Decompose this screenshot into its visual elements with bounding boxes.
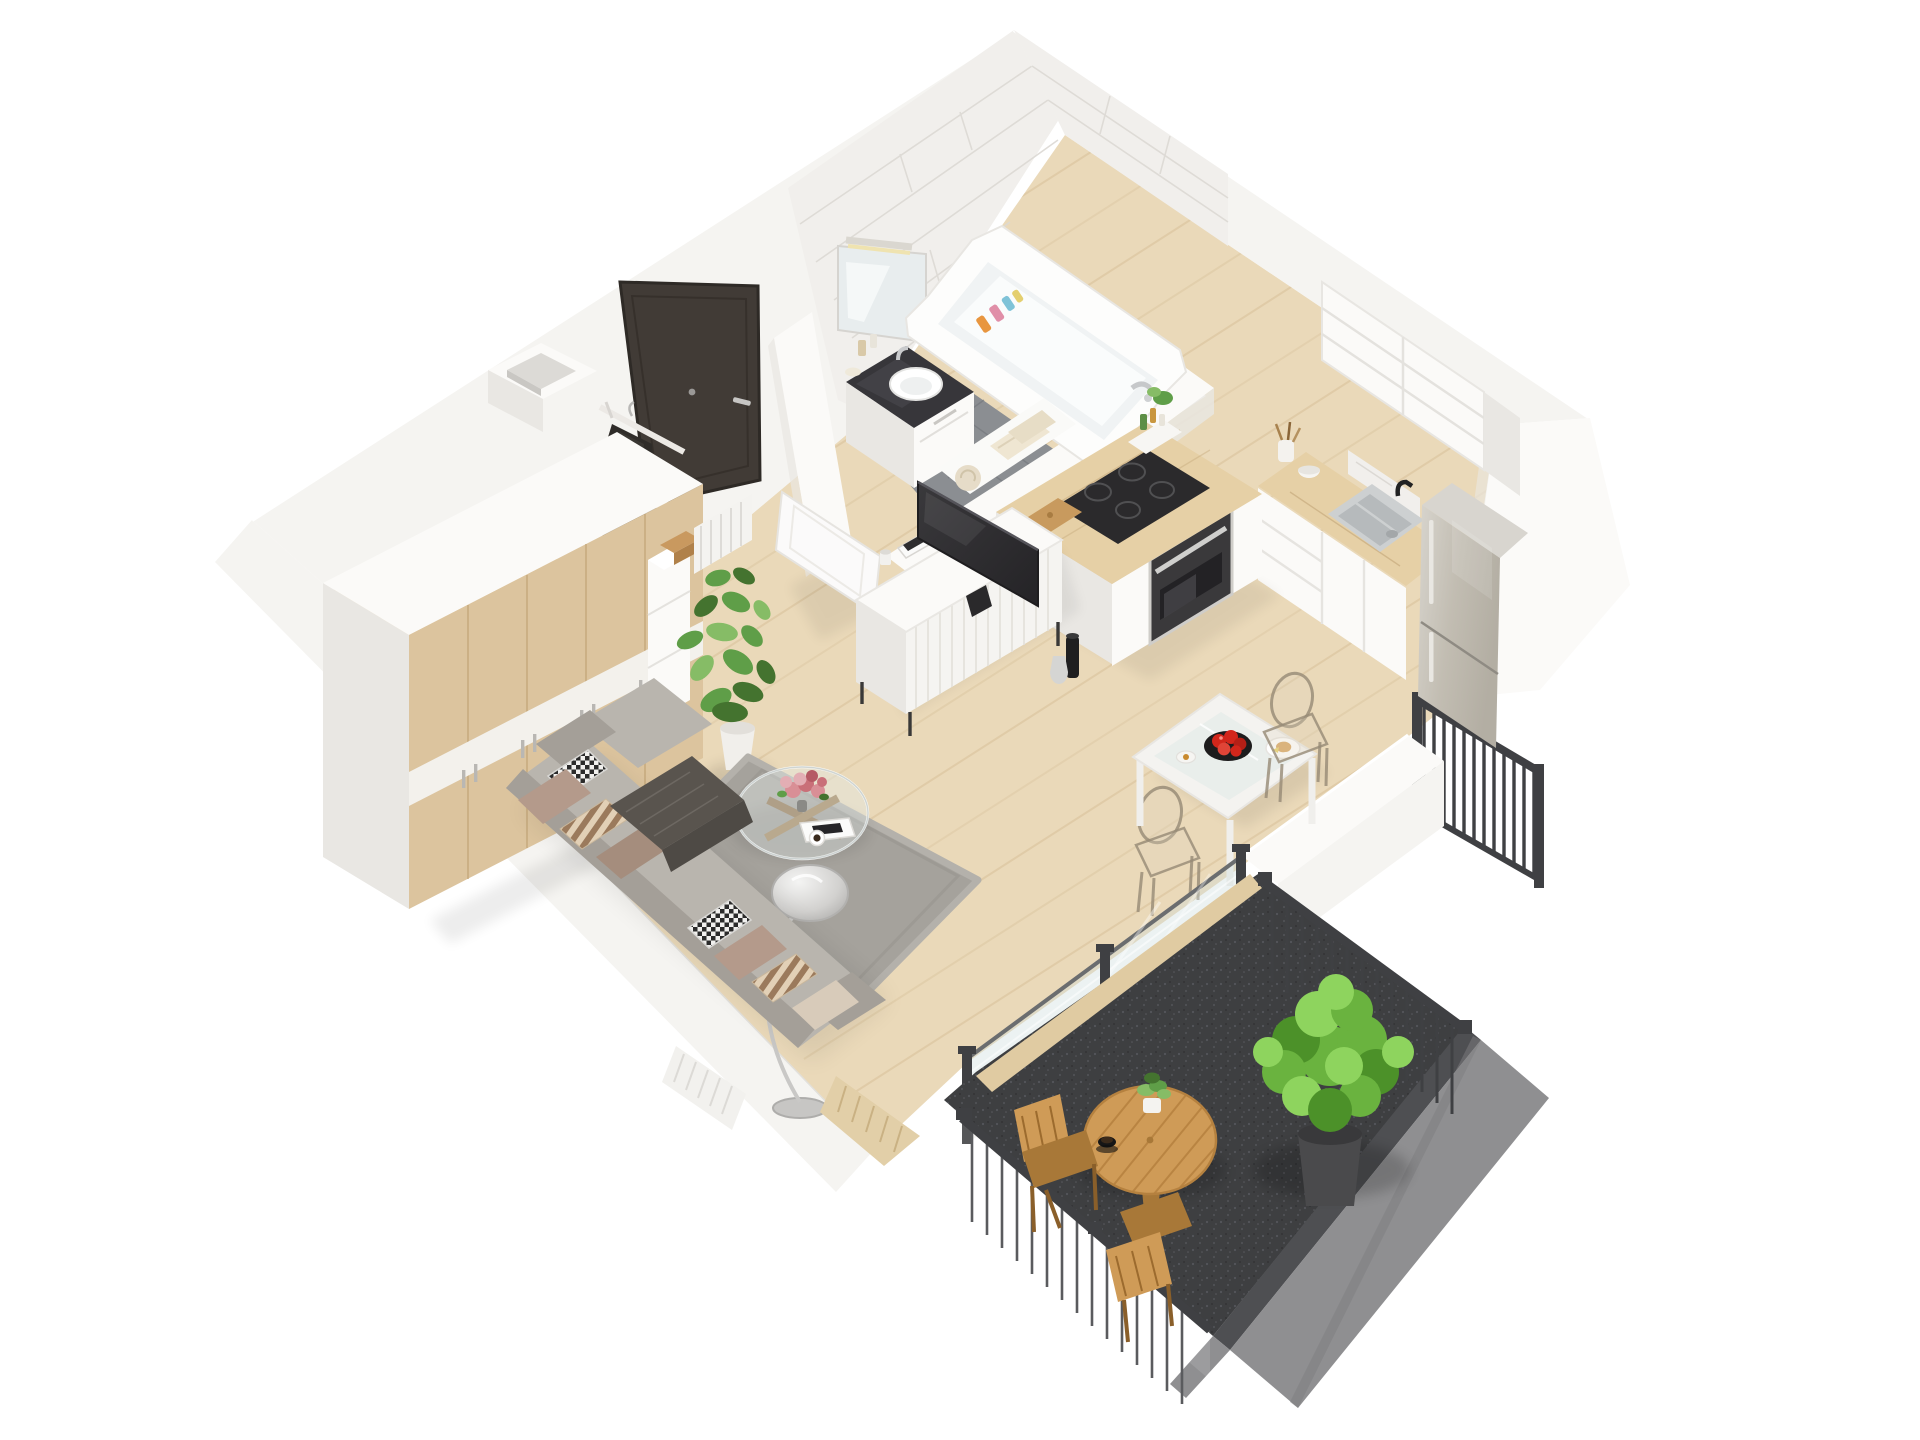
peephole [689, 389, 696, 396]
coffee-cup [810, 831, 825, 846]
soap-dish [845, 368, 861, 377]
floor-plan-render [0, 0, 1920, 1440]
candle [1177, 751, 1196, 763]
lotion-bottle [858, 340, 866, 356]
chrome-jug [1050, 656, 1068, 684]
mug [880, 549, 891, 565]
